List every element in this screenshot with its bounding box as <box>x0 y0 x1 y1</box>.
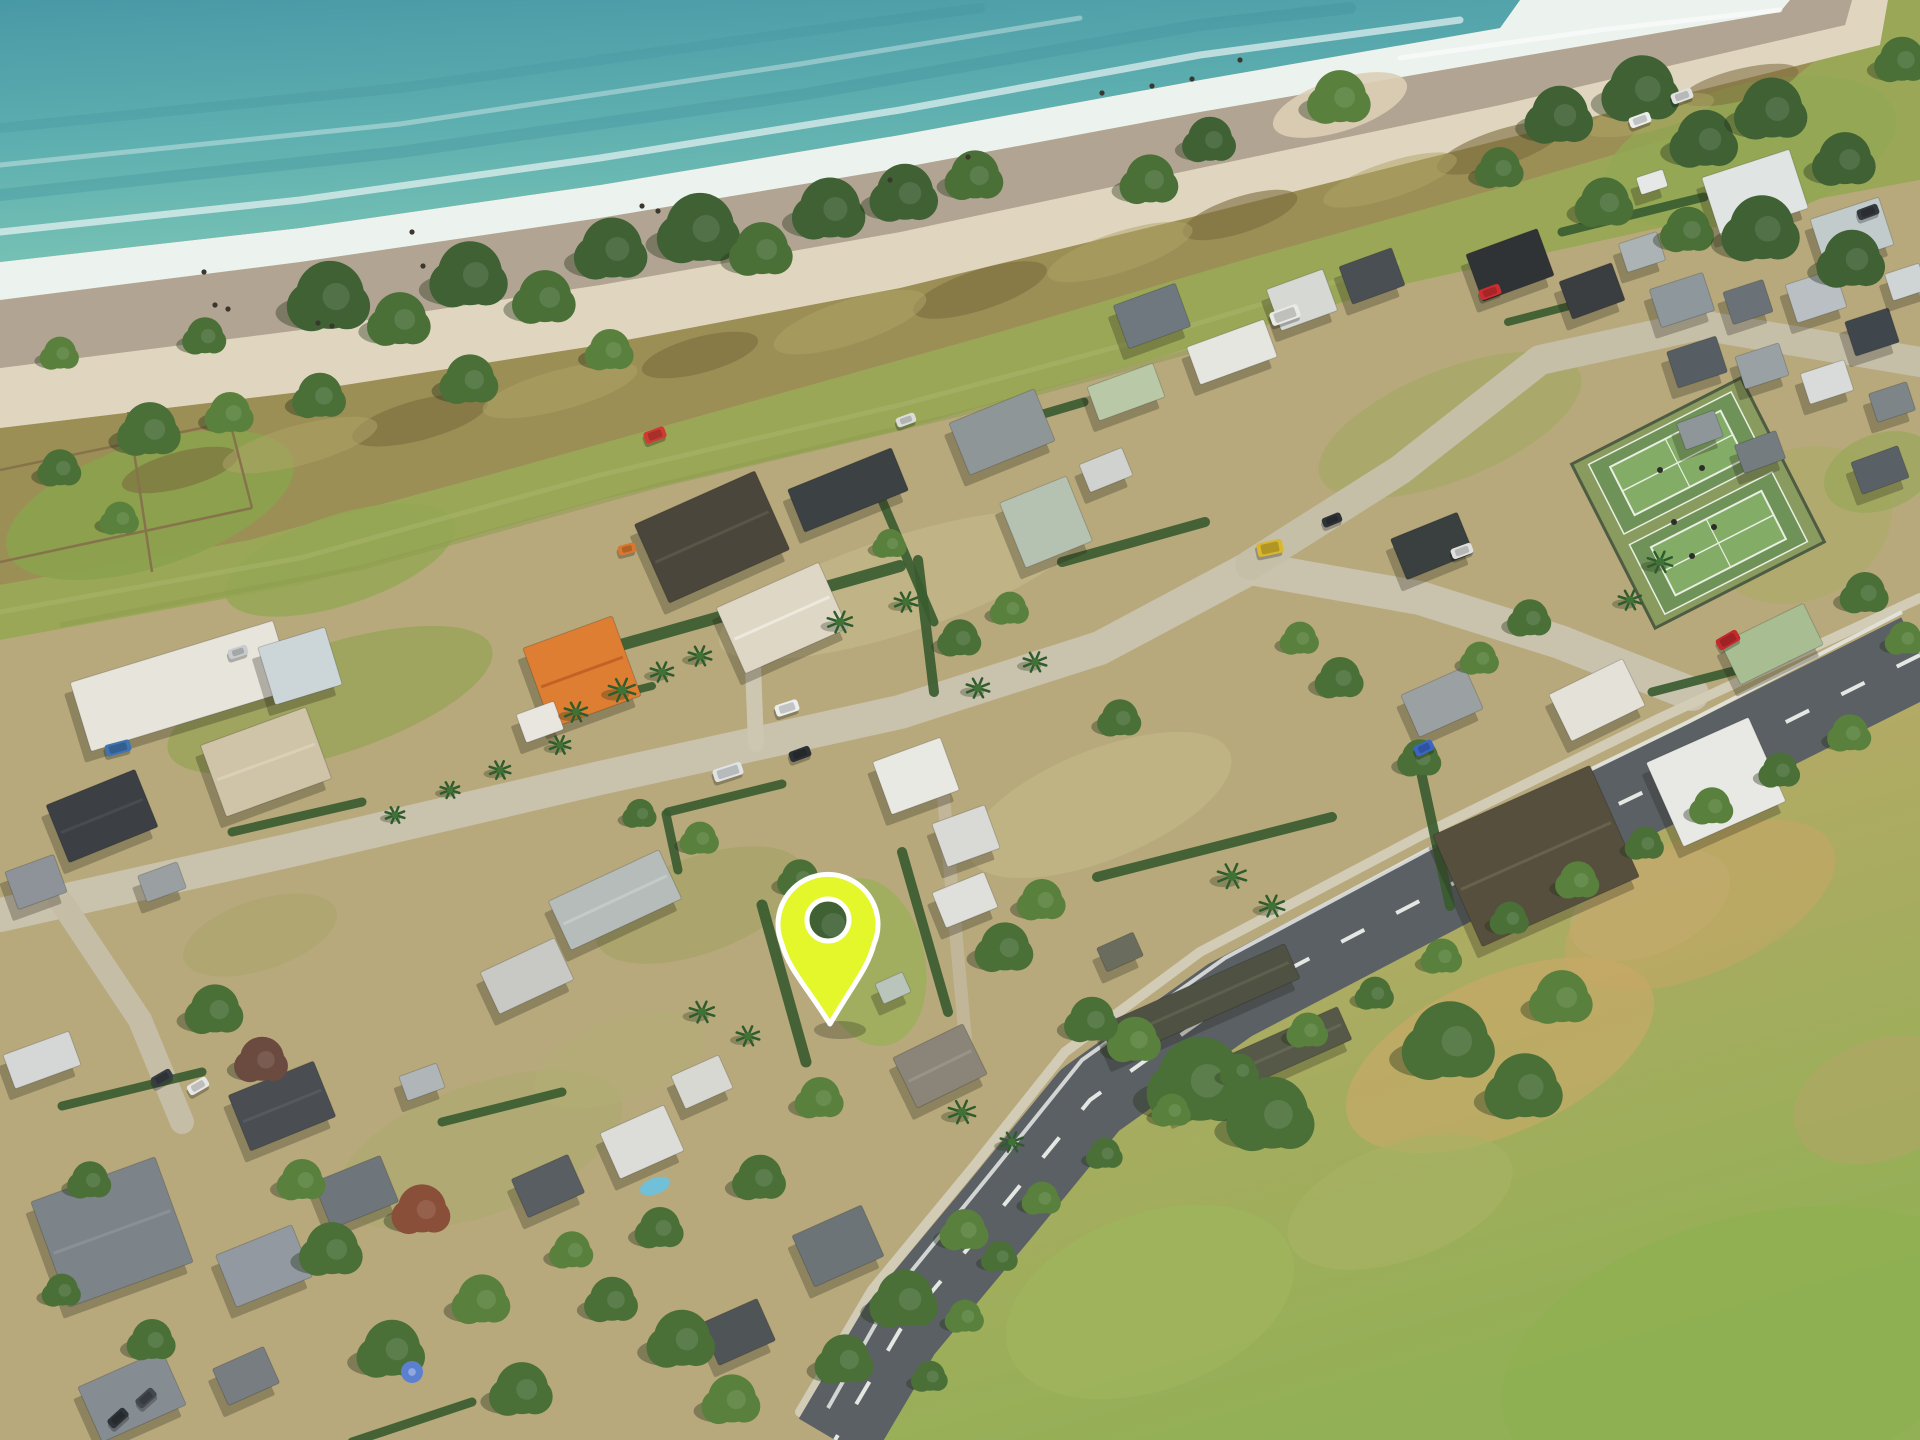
palm-crown <box>1008 1138 1016 1146</box>
tree-highlight <box>607 1291 625 1309</box>
tree-highlight <box>1236 1064 1249 1077</box>
tree-highlight <box>1708 799 1722 813</box>
palm-crown <box>447 787 453 793</box>
tennis-player <box>1671 519 1677 525</box>
tree-highlight <box>637 808 648 819</box>
tree-highlight <box>1334 87 1355 108</box>
tennis-player <box>1689 553 1695 559</box>
palm-crown <box>618 686 627 695</box>
tree-highlight <box>568 1243 582 1257</box>
tree-highlight <box>676 1328 698 1350</box>
tree-highlight <box>210 1000 229 1019</box>
tree-highlight <box>1635 76 1661 102</box>
person <box>201 269 206 274</box>
tree-highlight <box>144 419 165 440</box>
person <box>225 306 230 311</box>
aerial-photo <box>0 0 1920 1440</box>
tree-highlight <box>1038 1192 1051 1205</box>
tree-highlight <box>86 1173 100 1187</box>
tree-highlight <box>899 1288 921 1310</box>
tennis-player <box>1711 524 1717 530</box>
person <box>1189 76 1194 81</box>
tree-highlight <box>1296 632 1309 645</box>
beach-umbrella-top <box>408 1368 416 1376</box>
tree-highlight <box>226 405 242 421</box>
tree-highlight <box>1496 160 1512 176</box>
tree-highlight <box>257 1051 275 1069</box>
tree-highlight <box>201 329 215 343</box>
person <box>1237 57 1242 62</box>
tree-highlight <box>539 287 560 308</box>
tree-highlight <box>899 182 921 204</box>
tree-highlight <box>656 1220 672 1236</box>
tree-highlight <box>887 538 898 549</box>
tree-highlight <box>417 1200 436 1219</box>
tree-highlight <box>1641 837 1654 850</box>
tree-highlight <box>1683 221 1701 239</box>
person <box>420 263 425 268</box>
tree-highlight <box>1518 1074 1544 1100</box>
palm-crown <box>744 1032 752 1040</box>
tree-highlight <box>58 1284 71 1297</box>
tree-highlight <box>516 1379 537 1400</box>
tree-highlight <box>1205 131 1223 149</box>
tree-highlight <box>1755 216 1781 242</box>
tree-highlight <box>1839 149 1860 170</box>
tree-highlight <box>1438 950 1452 964</box>
person <box>655 208 660 213</box>
tree-highlight <box>1006 602 1019 615</box>
tree-highlight <box>1116 711 1130 725</box>
tree-highlight <box>1574 873 1588 887</box>
tree-highlight <box>1861 585 1877 601</box>
tree-highlight <box>463 262 489 288</box>
person <box>409 229 414 234</box>
tree-highlight <box>997 1251 1009 1263</box>
tree-highlight <box>394 309 415 330</box>
tree-highlight <box>1506 912 1519 925</box>
tree-highlight <box>1776 764 1790 778</box>
palm-crown <box>1227 871 1237 881</box>
tree-highlight <box>1087 1011 1105 1029</box>
tree-highlight <box>1038 892 1054 908</box>
palm-crown <box>658 668 666 676</box>
tree-highlight <box>606 342 622 358</box>
tree-highlight <box>1102 1148 1114 1160</box>
palm-crown <box>1656 558 1664 566</box>
tree-highlight <box>1000 938 1019 957</box>
tree-highlight <box>1556 987 1577 1008</box>
tree-highlight <box>1371 987 1384 1000</box>
tree-highlight <box>755 1169 773 1187</box>
aerial-photo-canvas <box>0 0 1920 1440</box>
tree-highlight <box>823 197 847 221</box>
tree-highlight <box>605 237 629 261</box>
tennis-player <box>1657 467 1663 473</box>
tree-highlight <box>1336 670 1352 686</box>
palm-crown <box>974 684 982 692</box>
palm-crown <box>1626 596 1634 604</box>
tree-highlight <box>840 1350 859 1369</box>
tree-highlight <box>56 347 69 360</box>
palm-crown <box>1031 658 1039 666</box>
tree-highlight <box>1765 97 1789 121</box>
palm-crown <box>496 766 503 773</box>
tree-highlight <box>116 512 129 525</box>
tree-highlight <box>693 215 720 242</box>
tree-highlight <box>323 283 350 310</box>
person <box>212 302 217 307</box>
tree-highlight <box>1526 611 1540 625</box>
tree-highlight <box>477 1290 496 1309</box>
tree-highlight <box>961 1310 974 1323</box>
person <box>639 203 644 208</box>
tree-highlight <box>1554 104 1576 126</box>
tree-highlight <box>727 1390 746 1409</box>
tree-highlight <box>326 1239 347 1260</box>
tree-highlight <box>956 631 970 645</box>
tree-highlight <box>148 1332 164 1348</box>
palm-crown <box>392 812 398 818</box>
palm-crown <box>902 598 910 606</box>
tree-highlight <box>56 461 70 475</box>
person <box>965 154 970 159</box>
tree-highlight <box>386 1338 408 1360</box>
tree-highlight <box>1145 170 1164 189</box>
tree-highlight <box>1846 248 1868 270</box>
person <box>1149 83 1154 88</box>
tree-highlight <box>970 166 989 185</box>
tree-highlight <box>961 1222 977 1238</box>
tree-highlight <box>756 239 777 260</box>
tree-highlight <box>298 1172 314 1188</box>
palm-crown <box>1268 902 1276 910</box>
tree-highlight <box>1264 1100 1293 1129</box>
pin-shadow <box>814 1021 866 1039</box>
tree-highlight <box>1600 193 1619 212</box>
tree-highlight <box>1304 1024 1318 1038</box>
tennis-player <box>1699 465 1705 471</box>
tree-highlight <box>465 370 484 389</box>
palm-crown <box>556 741 563 748</box>
palm-crown <box>572 708 580 716</box>
tree-highlight <box>1168 1104 1181 1117</box>
tree-highlight <box>315 387 333 405</box>
palm-crown <box>698 1008 706 1016</box>
palm-crown <box>696 652 704 660</box>
person <box>1099 90 1104 95</box>
tree-highlight <box>1476 652 1489 665</box>
tree-highlight <box>816 1090 832 1106</box>
tree-highlight <box>1130 1031 1148 1049</box>
tree-highlight <box>1846 726 1860 740</box>
tree-highlight <box>927 1371 939 1383</box>
person <box>329 323 334 328</box>
person <box>887 177 892 182</box>
palm-crown <box>958 1108 967 1117</box>
palm-crown <box>836 618 844 626</box>
tree-highlight <box>1442 1026 1472 1056</box>
tree-highlight <box>1699 128 1721 150</box>
tree-highlight <box>1897 51 1915 69</box>
tree-highlight <box>696 832 709 845</box>
tree-highlight <box>1901 632 1914 645</box>
person <box>315 320 320 325</box>
